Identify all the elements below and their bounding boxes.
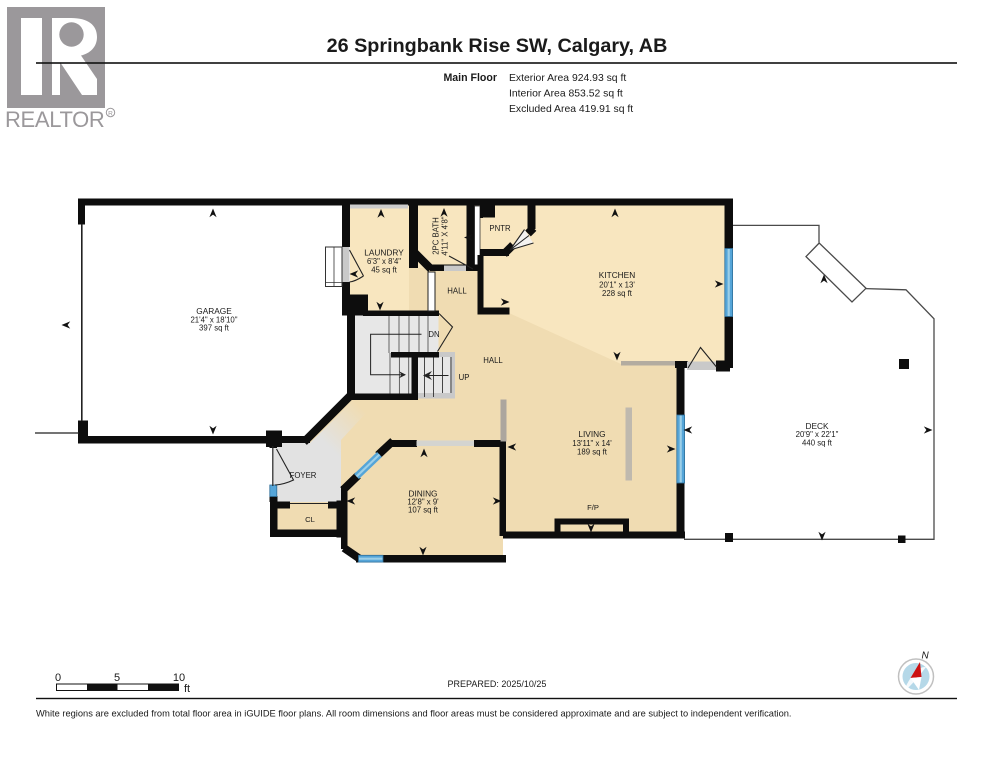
svg-text:HALL: HALL — [447, 287, 467, 296]
svg-text:0: 0 — [55, 672, 61, 684]
svg-text:HALL: HALL — [483, 356, 503, 365]
svg-text:CL: CL — [305, 515, 315, 524]
svg-text:GARAGE: GARAGE — [196, 306, 232, 316]
svg-text:440 sq ft: 440 sq ft — [802, 439, 833, 448]
svg-text:LAUNDRY: LAUNDRY — [364, 248, 404, 258]
svg-text:LIVING: LIVING — [578, 429, 605, 439]
svg-text:45 sq ft: 45 sq ft — [371, 266, 397, 275]
svg-text:DN: DN — [428, 330, 439, 339]
svg-text:N: N — [922, 651, 930, 662]
svg-text:PREPARED: 2025/10/25: PREPARED: 2025/10/25 — [448, 679, 547, 689]
svg-text:397 sq ft: 397 sq ft — [199, 324, 230, 333]
svg-text:FOYER: FOYER — [290, 471, 317, 480]
svg-text:228 sq ft: 228 sq ft — [602, 289, 633, 298]
svg-text:Excluded Area 419.91 sq ft: Excluded Area 419.91 sq ft — [509, 104, 633, 115]
svg-text:4'11" X 4'8": 4'11" X 4'8" — [441, 216, 450, 255]
svg-text:KITCHEN: KITCHEN — [599, 270, 635, 280]
svg-text:Exterior Area 924.93 sq ft: Exterior Area 924.93 sq ft — [509, 73, 626, 84]
svg-text:Interior Area 853.52 sq ft: Interior Area 853.52 sq ft — [509, 89, 623, 100]
svg-text:5: 5 — [114, 672, 120, 684]
svg-text:26 Springbank Rise SW, Calgary: 26 Springbank Rise SW, Calgary, AB — [327, 35, 668, 57]
svg-text:189 sq ft: 189 sq ft — [577, 448, 608, 457]
svg-text:107 sq ft: 107 sq ft — [408, 506, 439, 515]
svg-text:F/P: F/P — [587, 503, 599, 512]
svg-text:R: R — [108, 111, 113, 118]
svg-text:PNTR: PNTR — [489, 224, 511, 233]
svg-text:White regions are excluded fro: White regions are excluded from total fl… — [36, 709, 792, 719]
svg-text:REALTOR: REALTOR — [5, 107, 105, 132]
svg-text:Main Floor: Main Floor — [443, 72, 497, 84]
svg-text:2PC BATH: 2PC BATH — [432, 217, 441, 255]
svg-text:UP: UP — [459, 373, 470, 382]
svg-text:ft: ft — [184, 683, 190, 695]
